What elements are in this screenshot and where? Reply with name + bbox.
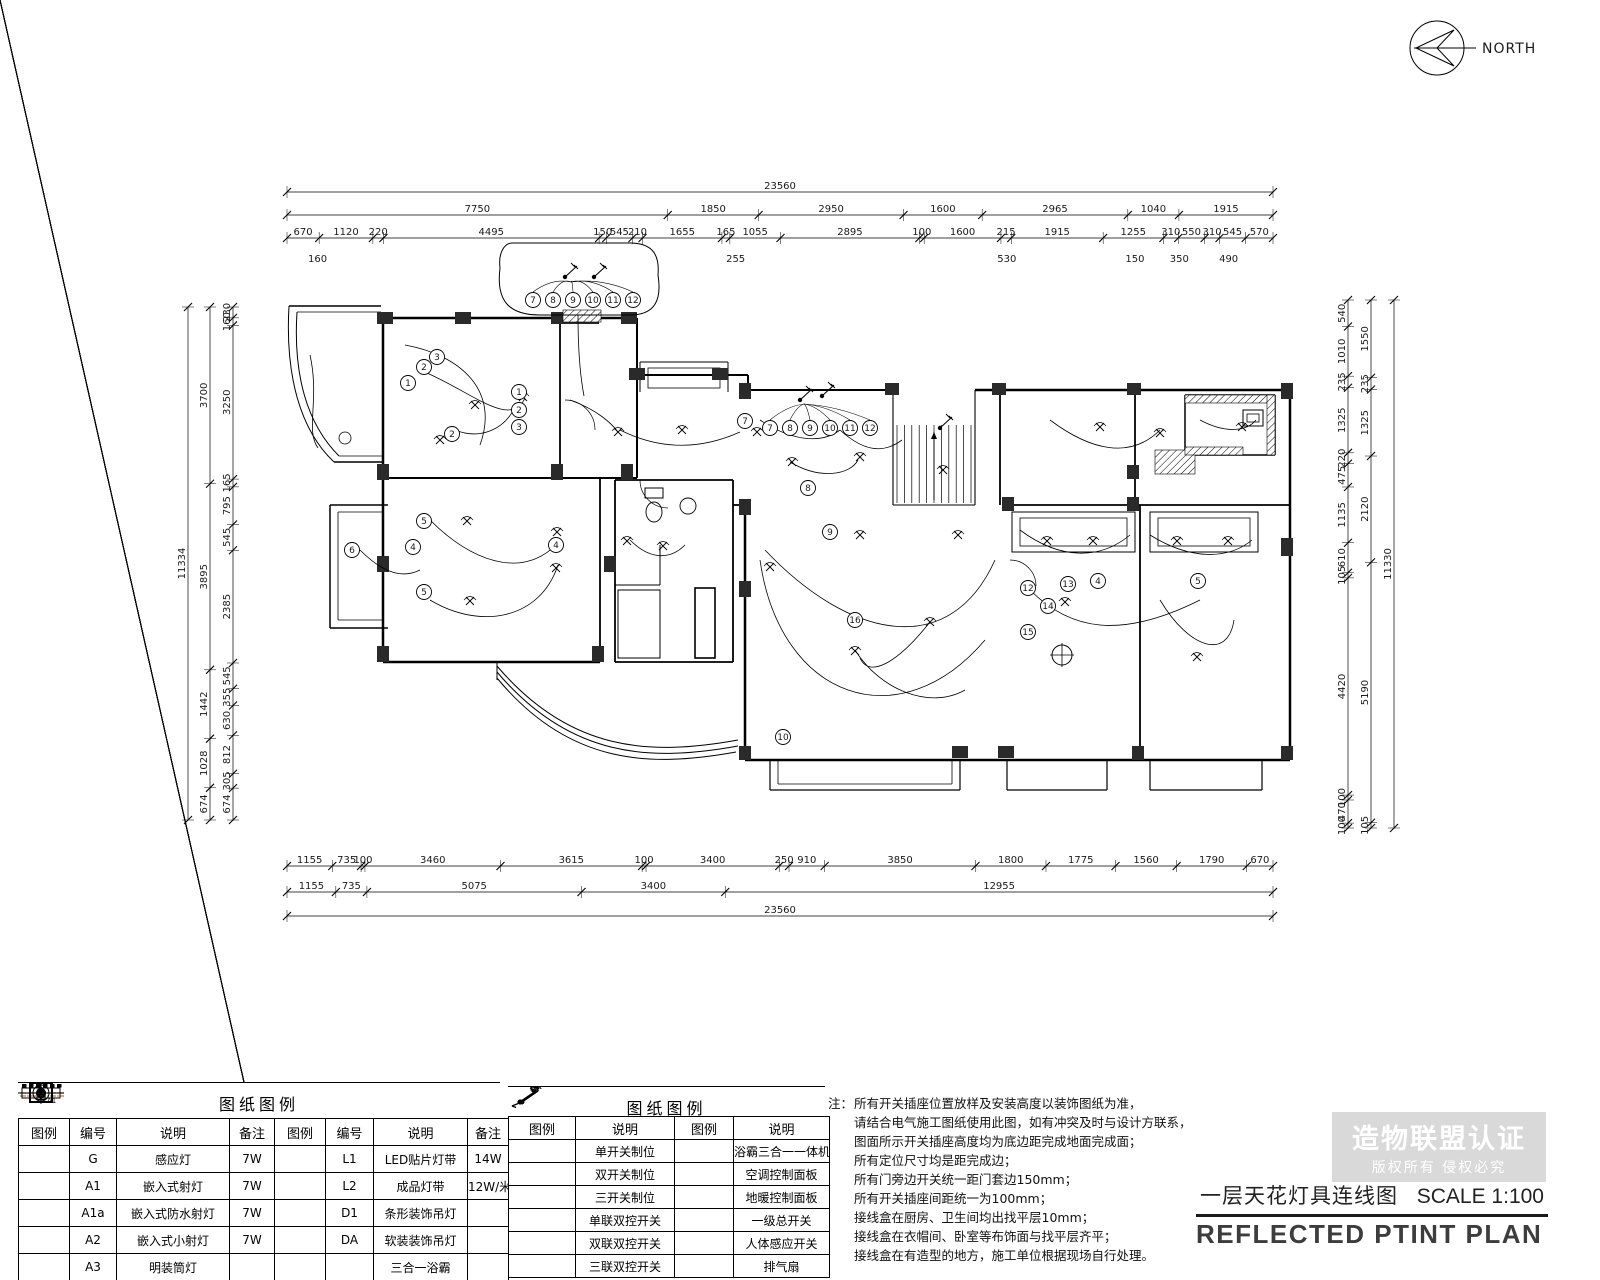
legend-cell: 双联双控开关 <box>576 1232 675 1255</box>
svg-text:812: 812 <box>222 745 233 764</box>
svg-text:1600: 1600 <box>930 204 955 215</box>
svg-text:4420: 4420 <box>1337 674 1348 699</box>
legend-cell: 7W <box>230 1173 275 1200</box>
legend-symbol-cell <box>675 1163 734 1186</box>
svg-text:1790: 1790 <box>1199 855 1224 866</box>
svg-text:735: 735 <box>342 881 361 892</box>
legend-cell: 明装筒灯 <box>117 1254 230 1280</box>
svg-text:6: 6 <box>349 546 355 556</box>
svg-text:8: 8 <box>787 424 793 434</box>
svg-text:1442: 1442 <box>199 692 210 717</box>
legend-cell: LED贴片灯带 <box>374 1146 468 1173</box>
svg-text:100: 100 <box>635 855 654 866</box>
svg-text:16: 16 <box>849 616 861 626</box>
svg-text:3400: 3400 <box>641 881 666 892</box>
legend-cell: G <box>70 1146 117 1173</box>
svg-text:310: 310 <box>1161 227 1180 238</box>
svg-text:11334: 11334 <box>177 548 188 580</box>
legend-cell: 图例 <box>19 1119 70 1146</box>
svg-text:4: 4 <box>1095 577 1101 587</box>
legend-cell <box>230 1254 275 1280</box>
legend-cell: 感应灯 <box>117 1146 230 1173</box>
legend-cell: 双开关制位 <box>576 1163 675 1186</box>
svg-text:355: 355 <box>222 688 233 707</box>
legend-cell: 一级总开关 <box>734 1209 830 1232</box>
legend-symbol-cell <box>275 1227 326 1254</box>
legend-cell: 说明 <box>734 1117 830 1140</box>
legend-cell <box>468 1200 509 1227</box>
svg-text:1800: 1800 <box>998 855 1023 866</box>
drawing-title-cn: 一层天花灯具连线图 <box>1200 1180 1398 1210</box>
svg-text:12: 12 <box>627 296 638 306</box>
legend-cell: 说明 <box>576 1117 675 1140</box>
note-line: 接线盒在厨房、卫生间均出找平层10mm； <box>854 1208 1208 1227</box>
svg-text:2: 2 <box>421 363 427 373</box>
legend-symbol-cell <box>509 1140 576 1163</box>
drawing-title-en: REFLECTED PTINT PLAN <box>1196 1219 1548 1250</box>
svg-text:7750: 7750 <box>465 204 490 215</box>
svg-text:9: 9 <box>827 528 833 538</box>
watermark: 造物联盟认证 版权所有 侵权必究 <box>1332 1112 1546 1182</box>
svg-text:1655: 1655 <box>670 227 695 238</box>
svg-text:305: 305 <box>222 771 233 790</box>
legend-symbol-cell <box>509 1163 576 1186</box>
svg-text:7: 7 <box>530 296 536 306</box>
svg-text:7: 7 <box>767 424 773 434</box>
legend-symbol-cell <box>275 1173 326 1200</box>
svg-text:475: 475 <box>1337 466 1348 485</box>
legend-cell: 成品灯带 <box>374 1173 468 1200</box>
svg-text:235: 235 <box>1337 372 1348 391</box>
svg-text:550: 550 <box>1182 227 1201 238</box>
note-line: 图面所示开关插座高度均为底边距完成地面完成面； <box>854 1132 1208 1151</box>
svg-text:1135: 1135 <box>1337 502 1348 527</box>
legend-cell <box>326 1254 374 1280</box>
svg-text:11: 11 <box>844 424 855 434</box>
svg-text:5: 5 <box>421 588 427 598</box>
svg-text:12: 12 <box>864 424 875 434</box>
svg-text:570: 570 <box>1250 227 1269 238</box>
legend-cell <box>468 1254 509 1280</box>
svg-text:3460: 3460 <box>420 855 445 866</box>
legend-row: 单联双控开关一级总开关 <box>509 1209 830 1232</box>
svg-text:2: 2 <box>449 430 455 440</box>
svg-text:1120: 1120 <box>333 227 358 238</box>
legend-table-mid: 图纸图例 图例说明图例说明单开关制位浴霸三合一一体机开关双开关制位空调控制面板三… <box>508 1086 825 1278</box>
legend-row: A3明装筒灯三合一浴霸 <box>19 1254 509 1280</box>
svg-text:1915: 1915 <box>1213 204 1238 215</box>
legend-cell: 图例 <box>275 1119 326 1146</box>
legend-cell: L2 <box>326 1173 374 1200</box>
legend-row: A2嵌入式小射灯7WDA软装装饰吊灯 <box>19 1227 509 1254</box>
svg-text:4495: 4495 <box>479 227 504 238</box>
legend-table-left: 图纸图例 图例编号说明备注图例编号说明备注G感应灯7WL1LED贴片灯带14WA… <box>18 1082 500 1280</box>
legend-cell: 单开关制位 <box>576 1140 675 1163</box>
svg-text:215: 215 <box>997 227 1016 238</box>
legend-symbol-cell <box>19 1146 70 1173</box>
svg-text:1915: 1915 <box>1044 227 1069 238</box>
drawing-canvas: 2356077501850295016002965104019156701120… <box>0 0 1600 1280</box>
svg-text:3400: 3400 <box>700 855 725 866</box>
legend-row: 单开关制位浴霸三合一一体机开关 <box>509 1140 830 1163</box>
note-line: 所有开关插座位置放样及安装高度以装饰图纸为准， <box>854 1094 1208 1113</box>
legend-row: 三开关制位地暖控制面板 <box>509 1186 830 1209</box>
svg-text:795: 795 <box>222 496 233 515</box>
legend-cell: 空调控制面板 <box>734 1163 830 1186</box>
legend-left-grid: 图例编号说明备注图例编号说明备注G感应灯7WL1LED贴片灯带14WA1A1嵌入… <box>18 1118 509 1280</box>
legend-row: 三联双控开关排气扇 <box>509 1255 830 1278</box>
svg-text:545: 545 <box>1223 227 1242 238</box>
svg-text:165: 165 <box>716 227 735 238</box>
note-line: 所有开关插座间距统一为100mm； <box>854 1189 1208 1208</box>
svg-text:160: 160 <box>222 312 233 331</box>
svg-text:105: 105 <box>1360 816 1371 835</box>
svg-text:1600: 1600 <box>950 227 975 238</box>
svg-text:165: 165 <box>222 473 233 492</box>
svg-text:1010: 1010 <box>1337 339 1348 364</box>
legend-symbol-cell <box>675 1186 734 1209</box>
svg-text:1325: 1325 <box>1360 410 1371 435</box>
legend-cell: 嵌入式防水射灯 <box>117 1200 230 1227</box>
legend-symbol-cell <box>675 1140 734 1163</box>
legend-row: A1A1嵌入式射灯7WL2成品灯带12W/米 <box>19 1173 509 1200</box>
legend-cell: A3 <box>70 1254 117 1280</box>
svg-text:545: 545 <box>610 227 629 238</box>
svg-text:160: 160 <box>308 254 327 265</box>
svg-text:8: 8 <box>550 296 556 306</box>
svg-text:545: 545 <box>222 528 233 547</box>
svg-text:1325: 1325 <box>1337 408 1348 433</box>
legend-symbol-cell <box>275 1254 326 1280</box>
svg-text:2965: 2965 <box>1042 204 1067 215</box>
legend-cell: 单联双控开关 <box>576 1209 675 1232</box>
svg-text:1155: 1155 <box>297 855 322 866</box>
legend-symbol-cell <box>509 1232 576 1255</box>
svg-text:674: 674 <box>222 795 233 814</box>
svg-text:220: 220 <box>1337 449 1348 468</box>
legend-cell: 嵌入式射灯 <box>117 1173 230 1200</box>
legend-cell <box>468 1227 509 1254</box>
svg-text:5190: 5190 <box>1360 680 1371 705</box>
notes-lines: 所有开关插座位置放样及安装高度以装饰图纸为准，请结合电气施工图纸使用此图，如有冲… <box>854 1094 1208 1265</box>
svg-text:10: 10 <box>777 733 789 743</box>
legend-symbol-cell <box>509 1255 576 1278</box>
legend-cell: 三开关制位 <box>576 1186 675 1209</box>
legend-left-title: 图纸图例 <box>18 1082 500 1118</box>
legend-mid-grid: 图例说明图例说明单开关制位浴霸三合一一体机开关双开关制位空调控制面板三开关制位地… <box>508 1116 830 1278</box>
svg-text:23560: 23560 <box>764 905 796 916</box>
legend-symbol-cell <box>675 1209 734 1232</box>
svg-text:1028: 1028 <box>199 751 210 776</box>
svg-text:674: 674 <box>199 794 210 813</box>
svg-text:23560: 23560 <box>764 181 796 192</box>
svg-text:350: 350 <box>1170 254 1189 265</box>
legend-row: A1a嵌入式防水射灯7WD1条形装饰吊灯 <box>19 1200 509 1227</box>
legend-cell: A2 <box>70 1227 117 1254</box>
legend-cell: 12W/米 <box>468 1173 509 1200</box>
svg-text:11: 11 <box>607 296 618 306</box>
svg-text:9: 9 <box>807 424 813 434</box>
legend-cell: L1 <box>326 1146 374 1173</box>
legend-symbol-cell <box>19 1227 70 1254</box>
svg-text:10: 10 <box>824 424 836 434</box>
svg-text:235: 235 <box>1360 374 1371 393</box>
note-line: 所有门旁边开关统一距门套边150mm； <box>854 1170 1208 1189</box>
svg-text:100: 100 <box>912 227 931 238</box>
legend-cell: 排气扇 <box>734 1255 830 1278</box>
svg-text:610: 610 <box>1337 548 1348 567</box>
svg-text:255: 255 <box>726 254 745 265</box>
svg-text:220: 220 <box>369 227 388 238</box>
svg-text:670: 670 <box>1250 855 1269 866</box>
svg-text:540: 540 <box>1337 304 1348 323</box>
svg-text:1055: 1055 <box>742 227 767 238</box>
legend-row: G感应灯7WL1LED贴片灯带14W <box>19 1146 509 1173</box>
svg-text:5: 5 <box>421 517 427 527</box>
legend-symbol-cell <box>275 1146 326 1173</box>
legend-symbol-cell <box>509 1209 576 1232</box>
legend-cell: 条形装饰吊灯 <box>374 1200 468 1227</box>
legend-cell: 地暖控制面板 <box>734 1186 830 1209</box>
legend-cell: 14W <box>468 1146 509 1173</box>
svg-text:2: 2 <box>516 406 522 416</box>
legend-cell: 备注 <box>468 1119 509 1146</box>
svg-text:12955: 12955 <box>983 881 1015 892</box>
svg-text:630: 630 <box>222 711 233 730</box>
svg-text:250: 250 <box>775 855 794 866</box>
svg-text:670: 670 <box>294 227 313 238</box>
watermark-line1: 造物联盟认证 <box>1332 1117 1546 1156</box>
note-line: 请结合电气施工图纸使用此图，如有冲突及时与设计方联系， <box>854 1113 1208 1132</box>
legend-cell: 7W <box>230 1146 275 1173</box>
svg-text:8: 8 <box>805 484 811 494</box>
legend-symbol-cell: A1 <box>19 1173 70 1200</box>
legend-cell: 三合一浴霸 <box>374 1254 468 1280</box>
svg-text:1: 1 <box>516 388 522 398</box>
north-label: NORTH <box>1482 41 1536 57</box>
svg-text:4: 4 <box>410 543 416 553</box>
legend-row: 双联双控开关人体感应开关 <box>509 1232 830 1255</box>
svg-text:5075: 5075 <box>461 881 486 892</box>
title-divider <box>1196 1214 1548 1217</box>
svg-text:910: 910 <box>797 855 816 866</box>
legend-symbol-cell <box>675 1232 734 1255</box>
svg-text:1850: 1850 <box>700 204 725 215</box>
legend-cell: 说明 <box>117 1119 230 1146</box>
svg-text:100: 100 <box>1337 816 1348 835</box>
legend-symbol-cell <box>275 1200 326 1227</box>
svg-text:2950: 2950 <box>818 204 843 215</box>
legend-row: 双开关制位空调控制面板 <box>509 1163 830 1186</box>
legend-cell: 嵌入式小射灯 <box>117 1227 230 1254</box>
svg-text:310: 310 <box>1203 227 1222 238</box>
svg-text:2895: 2895 <box>837 227 862 238</box>
note-line: 接线盒在衣帽间、卧室等布饰面与找平层齐平； <box>854 1227 1208 1246</box>
svg-text:4: 4 <box>553 541 559 551</box>
svg-text:3895: 3895 <box>199 564 210 589</box>
svg-text:3700: 3700 <box>199 383 210 408</box>
svg-text:1550: 1550 <box>1360 326 1371 351</box>
legend-cell: 软装装饰吊灯 <box>374 1227 468 1254</box>
svg-text:12: 12 <box>1022 584 1033 594</box>
legend-cell: 图例 <box>675 1117 734 1140</box>
legend-cell: 人体感应开关 <box>734 1232 830 1255</box>
legend-cell: DA <box>326 1227 374 1254</box>
legend-cell: 编号 <box>326 1119 374 1146</box>
legend-cell: A1 <box>70 1173 117 1200</box>
title-block: 一层天花灯具连线图 SCALE 1:100 REFLECTED PTINT PL… <box>1196 1180 1548 1250</box>
svg-text:490: 490 <box>1219 254 1238 265</box>
legend-cell: 说明 <box>374 1119 468 1146</box>
svg-text:3250: 3250 <box>222 390 233 415</box>
svg-text:1775: 1775 <box>1068 855 1093 866</box>
svg-text:3615: 3615 <box>559 855 584 866</box>
legend-cell: A1a <box>70 1200 117 1227</box>
drawing-scale: SCALE 1:100 <box>1417 1185 1544 1209</box>
legend-symbol-cell <box>675 1255 734 1278</box>
legend-cell: 备注 <box>230 1119 275 1146</box>
svg-text:3850: 3850 <box>887 855 912 866</box>
legend-symbol-cell <box>19 1254 70 1280</box>
svg-text:2385: 2385 <box>222 594 233 619</box>
note-line: 接线盒在有造型的地方，施工单位根据现场自行处理。 <box>854 1246 1208 1265</box>
svg-text:105: 105 <box>1337 566 1348 585</box>
svg-text:150: 150 <box>1125 254 1144 265</box>
note-line: 所有定位尺寸均是距完成边； <box>854 1151 1208 1170</box>
legend-cell: 图例 <box>509 1117 576 1140</box>
legend-symbol-cell <box>19 1200 70 1227</box>
svg-text:5: 5 <box>1195 577 1201 587</box>
legend-symbol-cell <box>509 1186 576 1209</box>
notes-label: 注： <box>828 1094 853 1113</box>
legend-cell: 浴霸三合一一体机开关 <box>734 1140 830 1163</box>
svg-text:15: 15 <box>1022 628 1033 638</box>
legend-mid-title: 图纸图例 <box>508 1086 825 1116</box>
svg-text:1: 1 <box>405 379 411 389</box>
svg-text:2120: 2120 <box>1360 496 1371 521</box>
legend-cell: 三联双控开关 <box>576 1255 675 1278</box>
svg-text:1040: 1040 <box>1141 204 1166 215</box>
svg-text:1155: 1155 <box>299 881 324 892</box>
svg-text:210: 210 <box>628 227 647 238</box>
notes-block: 注： 所有开关插座位置放样及安装高度以装饰图纸为准，请结合电气施工图纸使用此图，… <box>828 1094 1208 1265</box>
svg-text:7: 7 <box>742 417 748 427</box>
legend-cell: 7W <box>230 1227 275 1254</box>
watermark-line2: 版权所有 侵权必究 <box>1332 1157 1546 1177</box>
legend-cell: D1 <box>326 1200 374 1227</box>
svg-text:14: 14 <box>1042 602 1054 612</box>
svg-text:3: 3 <box>516 423 522 433</box>
svg-text:545: 545 <box>222 666 233 685</box>
legend-cell: 编号 <box>70 1119 117 1146</box>
svg-text:11330: 11330 <box>1383 548 1394 580</box>
legend-cell: 7W <box>230 1200 275 1227</box>
svg-text:13: 13 <box>1062 580 1073 590</box>
svg-text:100: 100 <box>353 855 372 866</box>
svg-text:3: 3 <box>434 353 440 363</box>
svg-text:530: 530 <box>997 254 1016 265</box>
svg-text:9: 9 <box>570 296 576 306</box>
svg-text:1255: 1255 <box>1121 227 1146 238</box>
svg-text:10: 10 <box>587 296 599 306</box>
svg-text:1560: 1560 <box>1133 855 1158 866</box>
